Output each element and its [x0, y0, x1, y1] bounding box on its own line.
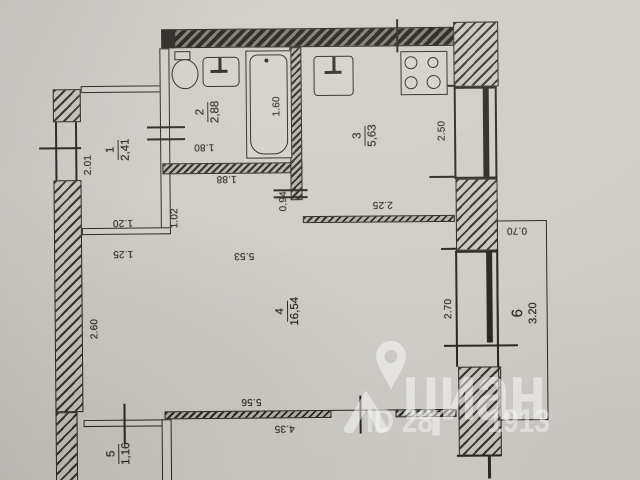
dim-room4-top: 5.53	[234, 250, 254, 261]
dim-kitchen-door: 0.94	[278, 191, 289, 211]
wall-left-bottom	[55, 412, 78, 480]
room4-label: 4 16,54	[274, 297, 301, 326]
floorplan-photo: 1 2,41 2 2,88 3 5,63 4 16,54 5 1,16 6 3.…	[0, 0, 640, 480]
balcony-label: 6 3.20	[510, 302, 539, 324]
wall-left-upper	[53, 89, 81, 122]
room2-area: 2,88	[208, 101, 221, 124]
room1-label: 1 2,41	[105, 138, 132, 161]
burner-icon	[404, 56, 417, 69]
dim-tub-length: 1.60	[271, 96, 282, 116]
room5-label: 5 1,16	[105, 442, 132, 465]
balcony-number: 6	[510, 309, 525, 317]
burner-icon	[427, 75, 441, 89]
window-kitchen	[0, 0, 638, 3]
floorplan: 1 2,41 2 2,88 3 5,63 4 16,54 5 1,16 6 3.…	[0, 0, 640, 480]
window-left	[0, 0, 638, 3]
dim-bath-width: 1.80	[194, 141, 214, 152]
dim-room4-depth: 2.70	[443, 299, 454, 319]
dim-balcony-depth: 0.70	[507, 225, 527, 236]
room3-label: 3 5,63	[351, 124, 378, 147]
dim-room1-door: 1.02	[169, 208, 180, 228]
room2-number: 2	[194, 102, 208, 123]
room3-number: 3	[351, 125, 365, 146]
room4-area: 16,54	[288, 297, 301, 326]
dim-hall-left: 1.25	[113, 248, 133, 259]
room3-area: 5,63	[365, 124, 378, 147]
burner-icon	[427, 57, 438, 68]
wall-right-upper	[453, 21, 499, 86]
dim-bath-wall: 1.88	[216, 173, 236, 184]
window-living	[0, 0, 638, 3]
dim-kitchen-depth: 2.50	[436, 121, 447, 141]
tick-closet-door	[123, 404, 125, 444]
dim-room4-width: 5.56	[241, 396, 261, 407]
room5-number: 5	[105, 444, 119, 465]
wall-room1-top	[81, 85, 162, 93]
tick-kitchen-top	[396, 19, 398, 52]
tick-room4-door	[359, 396, 361, 434]
room2-label: 2 2,88	[194, 101, 221, 124]
wall-right-lower	[458, 366, 502, 455]
wall-room1-right	[159, 48, 171, 234]
wall-room4-bottom-left	[164, 410, 331, 419]
dim-left-top: 2.01	[83, 155, 94, 175]
wall-kitchen-bottom	[303, 215, 455, 223]
wall-closet-right	[162, 419, 173, 480]
wall-right-middle	[455, 178, 498, 250]
wall-room1-bottom	[82, 227, 171, 235]
doorway-bottom-right	[0, 0, 638, 3]
toilet-icon	[171, 59, 198, 89]
dim-left-bottom: 2.60	[89, 319, 100, 339]
room1-area: 2,41	[119, 138, 132, 161]
dim-room1-width: 1.20	[113, 217, 133, 228]
room4-number: 4	[274, 301, 288, 322]
dim-room4-inner: 4.35	[274, 423, 294, 434]
wall-top	[161, 27, 458, 49]
tick-room1-door-a	[147, 126, 185, 128]
bathtub-drain-icon	[264, 58, 268, 62]
burner-icon	[405, 76, 418, 89]
room5-area: 1,16	[119, 442, 132, 465]
room1-number: 1	[105, 140, 119, 161]
line-room4-door-gap	[331, 409, 396, 411]
dim-kitchen-width: 2.25	[373, 199, 393, 210]
wall-room4-bottom-right	[395, 409, 456, 418]
tick-sill-3	[441, 248, 457, 250]
tick-room1-door-b	[147, 138, 185, 140]
balcony-area: 3.20	[528, 302, 539, 324]
tick-sill-2	[429, 176, 456, 178]
wall-top-solid-end	[161, 29, 175, 48]
wall-left-main	[53, 180, 83, 412]
